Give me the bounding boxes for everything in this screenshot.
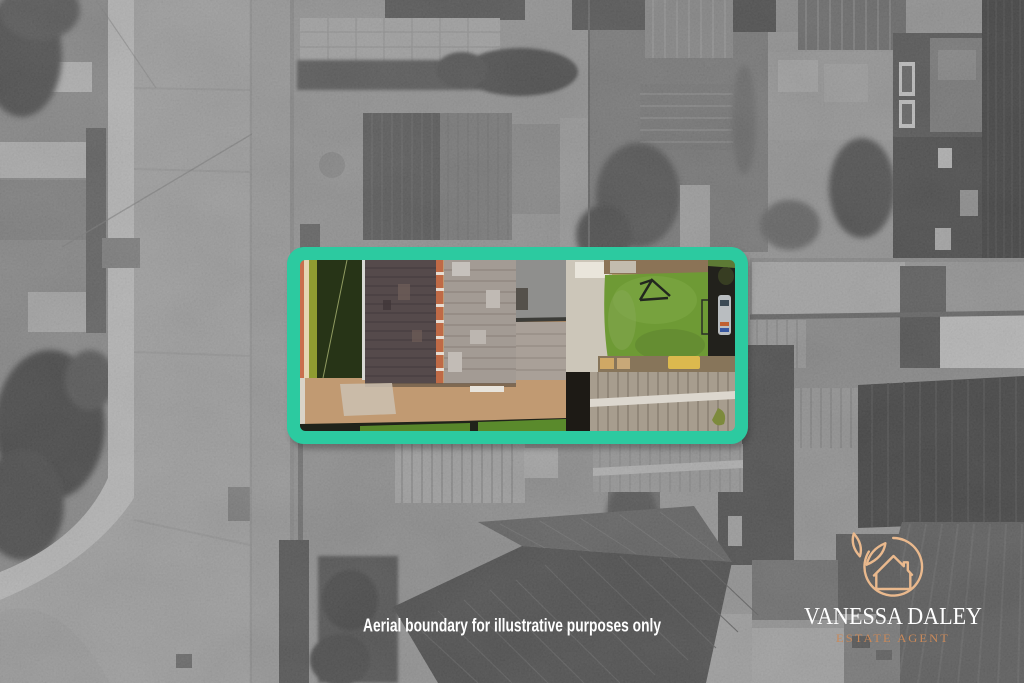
svg-text:ESTATE AGENT: ESTATE AGENT xyxy=(836,631,950,645)
svg-text:Aerial boundary for illustrati: Aerial boundary for illustrative purpose… xyxy=(363,615,662,636)
svg-text:VANESSA DALEY: VANESSA DALEY xyxy=(804,603,982,630)
